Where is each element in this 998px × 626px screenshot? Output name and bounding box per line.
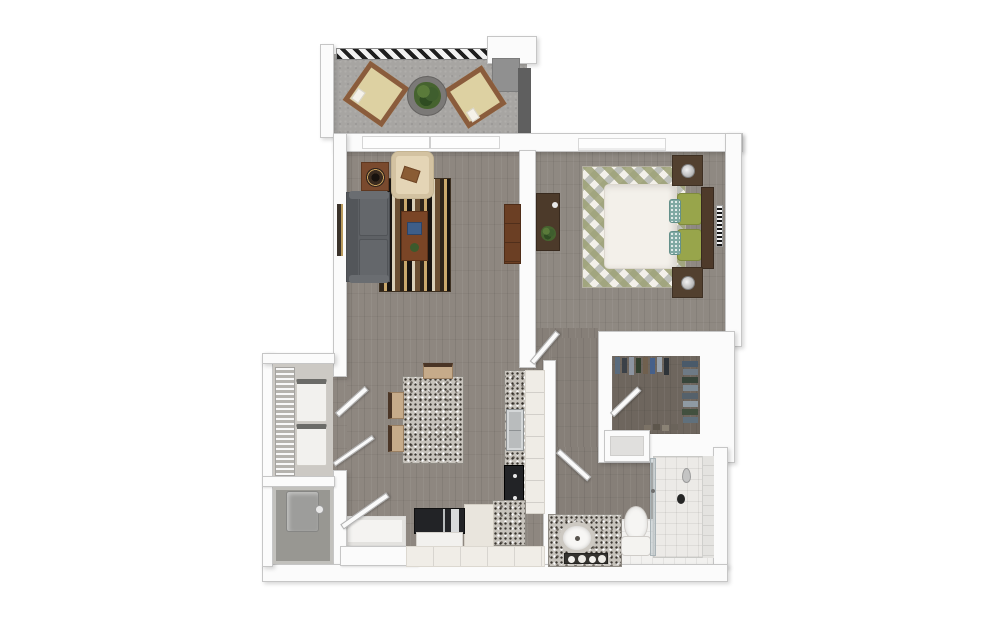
balcony-railing — [336, 48, 488, 60]
shower-wall-tile — [702, 456, 714, 558]
chair-towel — [466, 108, 480, 123]
balcony-dark-edge — [518, 68, 531, 134]
laundry-block-top-wall — [262, 353, 335, 364]
shower-glass-door — [650, 458, 656, 556]
linen-niche-shelf — [610, 436, 644, 456]
sink-drain — [575, 536, 580, 541]
balcony-plant — [414, 82, 441, 109]
sofa-armrest — [349, 191, 389, 199]
dining-chair-left — [388, 425, 404, 452]
kitchen-sink — [506, 409, 524, 451]
laundry-utility-divider — [262, 476, 335, 487]
bedroom-right-wall — [725, 133, 742, 347]
candle — [598, 555, 606, 563]
book — [407, 222, 422, 235]
table-lamp — [681, 276, 695, 290]
media-console — [504, 204, 521, 264]
chair-towel — [351, 88, 366, 104]
sofa-armrest — [349, 275, 389, 283]
kitchen-counter-cabinets — [525, 370, 545, 514]
bed-pillow-teal — [669, 199, 681, 223]
closet-clothes-side-rail — [681, 361, 699, 431]
coffee-table — [401, 211, 428, 261]
shower-door-handle — [651, 489, 655, 493]
wall-label-barcode — [716, 205, 723, 247]
hallway-floor — [551, 338, 599, 450]
shower-head — [682, 468, 691, 483]
bathroom-right-wall — [713, 447, 728, 568]
dining-chair-top — [423, 363, 453, 379]
candle-tray — [564, 553, 608, 564]
nightstand-bottom — [672, 267, 703, 298]
water-heater — [286, 491, 319, 532]
table-lamp — [681, 164, 695, 178]
headboard — [701, 187, 714, 269]
water-heater-valve — [315, 505, 324, 514]
speaker — [366, 168, 385, 187]
balcony-sliding-door — [362, 136, 500, 149]
bed-pillow-teal — [669, 231, 681, 255]
speaker-side-table — [361, 162, 389, 191]
toilet-bowl — [624, 506, 648, 540]
candle — [589, 556, 596, 563]
wall-art-frame — [337, 204, 343, 256]
shower-drain — [677, 494, 685, 504]
armchair-pillow — [400, 166, 420, 184]
nightstand-top — [672, 155, 703, 186]
sofa-cushion — [359, 239, 388, 278]
desk-plant — [541, 226, 556, 241]
candle — [568, 556, 575, 563]
kitchen-island — [402, 376, 464, 464]
refrigerator-top — [414, 508, 465, 534]
wire-shelving — [275, 367, 295, 476]
balcony-left-wall — [320, 44, 334, 138]
dining-chair-left — [388, 392, 404, 419]
stacked-dryer — [296, 424, 327, 466]
laundry-block-left-wall — [262, 353, 273, 567]
bed-duvet — [604, 184, 677, 269]
floor-plan-render — [0, 0, 998, 626]
closet-clothes-top-rail — [615, 357, 675, 377]
sofa-cushion — [359, 197, 388, 236]
base-cabinets — [406, 546, 545, 567]
bedroom-window — [578, 138, 666, 151]
table-plant — [410, 243, 419, 252]
armchair — [391, 151, 434, 199]
sofa — [346, 192, 390, 282]
corner-counter-granite — [492, 500, 526, 546]
desk-knob — [552, 202, 558, 208]
candle — [578, 555, 586, 563]
stacked-washer — [296, 379, 327, 422]
toilet-tank — [621, 536, 651, 556]
bedroom-desk — [536, 193, 560, 251]
vanity-sink — [559, 522, 595, 554]
sofa-backrest — [347, 193, 358, 281]
living-bedroom-wall — [519, 150, 536, 368]
corner-counter-step — [464, 504, 494, 550]
